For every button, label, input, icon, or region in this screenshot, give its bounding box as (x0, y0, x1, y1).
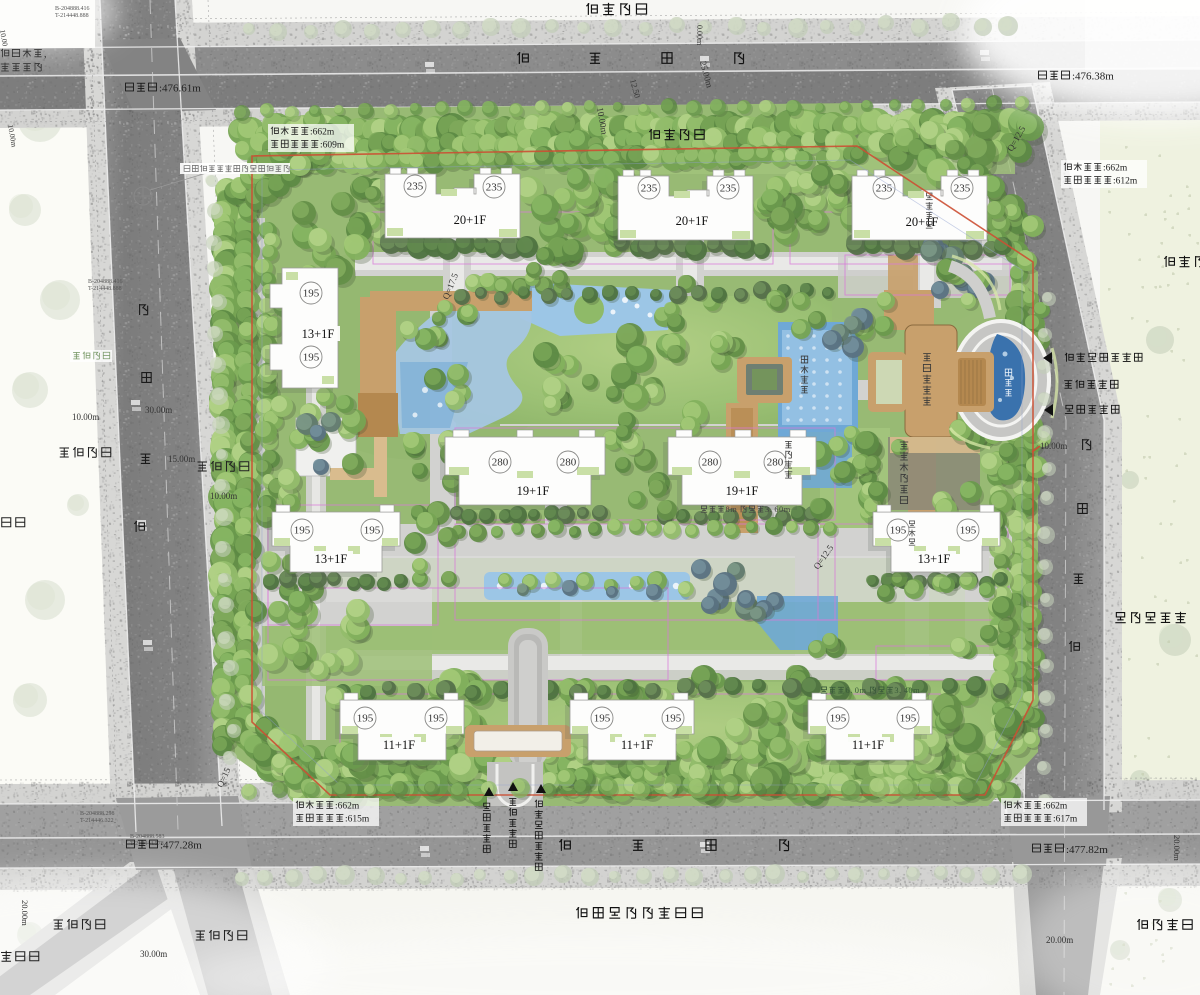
svg-text:235: 235 (407, 181, 424, 193)
svg-text:6: 6 (774, 505, 778, 514)
svg-text:T-214444.578: T-214444.578 (130, 841, 164, 847)
svg-text::476.38m: :476.38m (1072, 71, 1114, 83)
svg-text:10.00m: 10.00m (210, 491, 237, 501)
svg-text:B-204888.298: B-204888.298 (80, 811, 115, 817)
svg-text:10.00m: 10.00m (72, 412, 99, 422)
svg-text:235: 235 (486, 182, 503, 194)
svg-text:m: m (730, 505, 737, 514)
svg-text:195: 195 (594, 713, 611, 725)
svg-text:13+1F: 13+1F (315, 552, 348, 566)
svg-text:10.00m: 10.00m (1040, 441, 1067, 451)
svg-text:11+1F: 11+1F (621, 738, 653, 752)
svg-text:20+1F: 20+1F (454, 213, 487, 227)
svg-text:3: 3 (894, 686, 898, 695)
svg-text:280: 280 (492, 457, 509, 469)
svg-text:3: 3 (765, 505, 769, 514)
svg-text:20+1F: 20+1F (676, 214, 709, 228)
svg-text:280: 280 (560, 457, 577, 469)
svg-text:13+1F: 13+1F (302, 327, 335, 341)
svg-text:B-204888.416: B-204888.416 (88, 279, 123, 285)
svg-text::662m: :662m (335, 802, 360, 812)
svg-text::615m: :615m (345, 815, 370, 825)
svg-text:0.00m: 0.00m (695, 25, 704, 46)
svg-text:195: 195 (294, 525, 311, 537)
svg-text:0: 0 (908, 686, 912, 695)
svg-text:T-214446.322: T-214446.322 (80, 818, 114, 824)
svg-text:235: 235 (876, 183, 893, 195)
svg-text:11+1F: 11+1F (383, 738, 415, 752)
svg-text:20.00m: 20.00m (20, 900, 30, 926)
svg-text:.: . (770, 505, 772, 514)
svg-text::662m: :662m (1103, 164, 1128, 174)
svg-text:195: 195 (364, 525, 381, 537)
svg-text:13+1F: 13+1F (918, 552, 951, 566)
svg-text:20.00m: 20.00m (1172, 835, 1182, 861)
svg-text:195: 195 (890, 525, 907, 537)
svg-text:6: 6 (846, 686, 850, 695)
svg-text:T-214448.888: T-214448.888 (88, 286, 122, 292)
svg-text:235: 235 (720, 183, 737, 195)
svg-text:195: 195 (303, 352, 320, 364)
svg-text:m: m (784, 505, 791, 514)
svg-text:195: 195 (428, 713, 445, 725)
svg-text::662m: :662m (310, 128, 335, 138)
svg-text:T-214448.888: T-214448.888 (55, 13, 89, 19)
svg-text:20+1F: 20+1F (906, 215, 939, 229)
svg-text:0: 0 (855, 686, 859, 695)
svg-text:m: m (860, 686, 867, 695)
svg-text:280: 280 (702, 457, 719, 469)
svg-text:30.00m: 30.00m (145, 405, 172, 415)
svg-text:0: 0 (779, 505, 783, 514)
svg-text:195: 195 (830, 713, 847, 725)
svg-text:195: 195 (665, 713, 682, 725)
svg-text:195: 195 (900, 713, 917, 725)
svg-text::477.28m: :477.28m (160, 840, 202, 852)
svg-text:m: m (913, 686, 920, 695)
svg-text:B-204888.416: B-204888.416 (55, 6, 90, 12)
svg-text:195: 195 (960, 525, 977, 537)
svg-text:.: . (899, 686, 901, 695)
svg-text::617m: :617m (1053, 815, 1078, 825)
svg-text::477.82m: :477.82m (1066, 844, 1108, 856)
svg-text:195: 195 (357, 713, 374, 725)
svg-text:30.00m: 30.00m (140, 949, 167, 959)
svg-text:19+1F: 19+1F (726, 484, 759, 498)
svg-text::476.61m: :476.61m (159, 83, 201, 95)
svg-text:8: 8 (726, 505, 730, 514)
svg-text:195: 195 (303, 288, 320, 300)
svg-text:15.00m: 15.00m (168, 454, 195, 464)
svg-text::662m: :662m (1043, 802, 1068, 812)
svg-text:.: . (850, 686, 852, 695)
svg-text:,: , (44, 49, 47, 60)
svg-text::612m: :612m (1113, 177, 1138, 187)
svg-text:280: 280 (767, 457, 784, 469)
svg-text:19+1F: 19+1F (517, 484, 550, 498)
svg-text:20.00m: 20.00m (1046, 935, 1073, 945)
svg-text:235: 235 (641, 183, 658, 195)
svg-text:235: 235 (954, 183, 971, 195)
svg-text:11+1F: 11+1F (852, 738, 884, 752)
svg-text::609m: :609m (320, 141, 345, 151)
